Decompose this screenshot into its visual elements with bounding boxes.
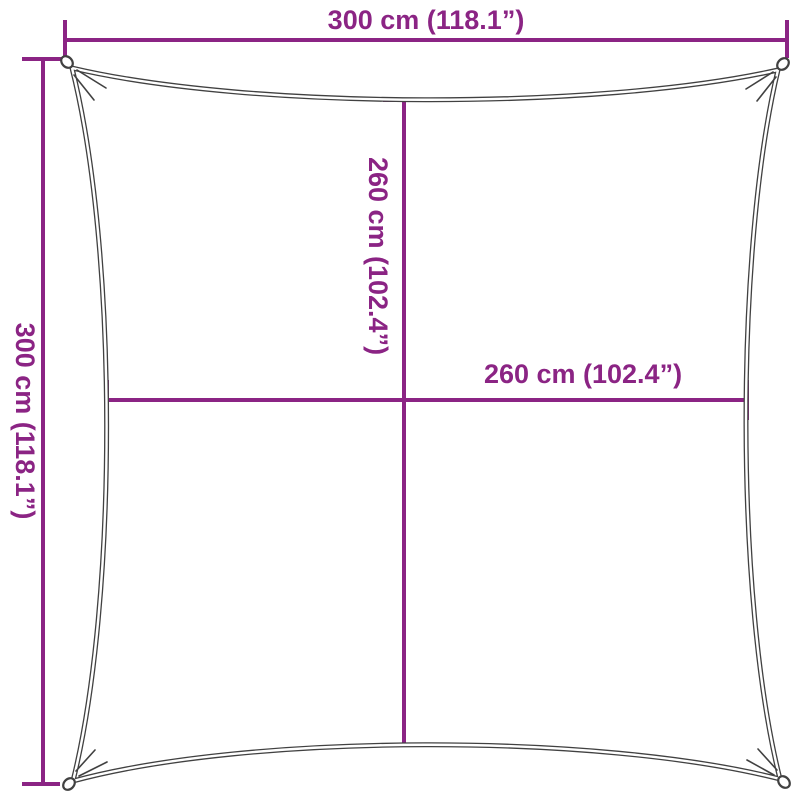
corner-rings [59,54,792,792]
dimension-lines [22,20,787,786]
diagram-canvas [0,0,800,800]
left-height-label: 300 cm (118.1”) [11,323,39,520]
dimension-diagram: 300 cm (118.1”) 300 cm (118.1”) 260 cm (… [0,0,800,800]
sail-outline [72,68,780,781]
corner-wrinkles [74,70,777,776]
inner-height-label: 260 cm (102.4”) [364,157,392,355]
inner-width-label: 260 cm (102.4”) [484,360,682,388]
sail-outline-core [72,68,780,781]
shade-sail [59,54,792,792]
top-width-label: 300 cm (118.1”) [328,6,525,34]
